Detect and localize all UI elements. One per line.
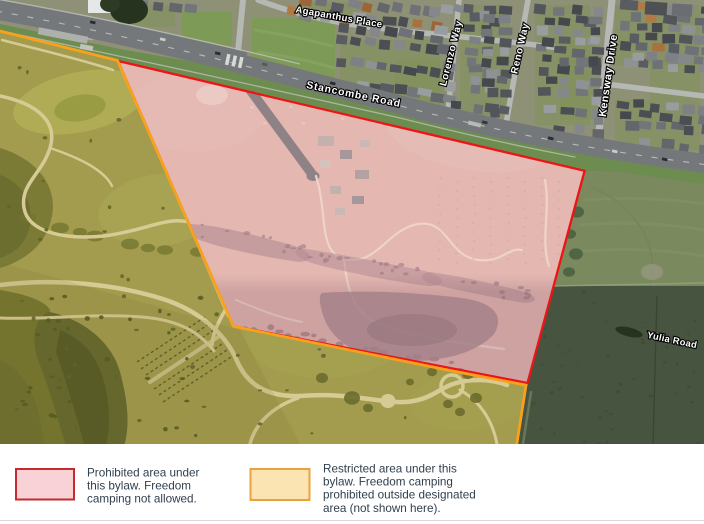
svg-text:this bylaw. Freedom: this bylaw. Freedom [87, 480, 191, 493]
svg-text:camping not allowed.: camping not allowed. [87, 493, 197, 506]
svg-text:Prohibited area under: Prohibited area under [87, 467, 200, 480]
svg-text:prohibited outside designated: prohibited outside designated [323, 489, 476, 502]
svg-text:bylaw. Freedom camping: bylaw. Freedom camping [323, 476, 453, 489]
svg-text:Restricted area under this: Restricted area under this [323, 463, 457, 476]
svg-text:area (not shown here).: area (not shown here). [323, 502, 441, 515]
